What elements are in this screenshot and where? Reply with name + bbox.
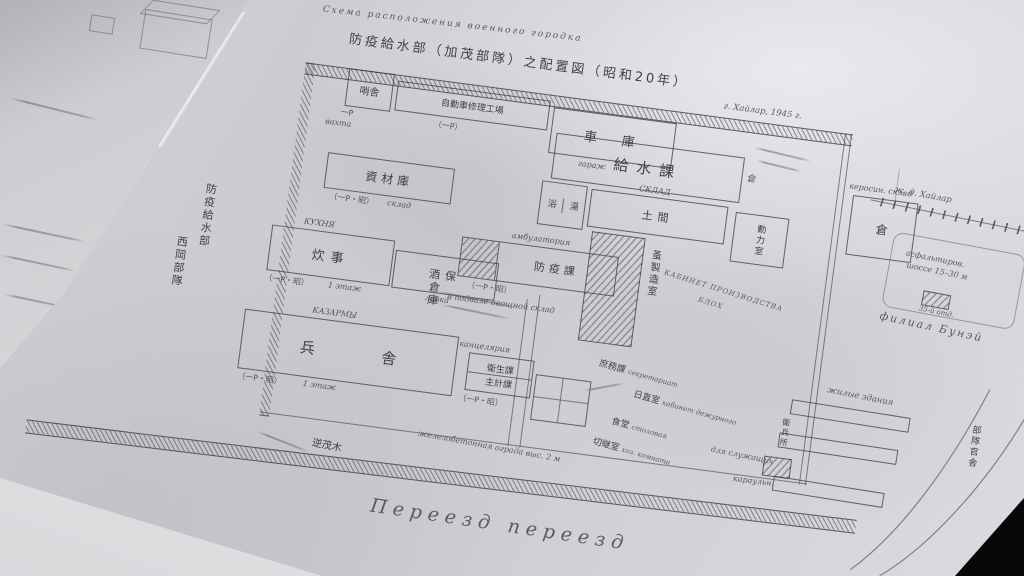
flea-production-note-2: БЛОХ (697, 296, 724, 311)
illegible-cursive-note (757, 160, 802, 172)
hq-duty-ru: кабинет дежурного (661, 399, 737, 427)
illegible-cursive-note (754, 147, 811, 162)
kitchen-note-below: 1 этаж (327, 280, 361, 293)
guard-post-sub: 一Р (340, 106, 354, 119)
water-side-note: 倉 (747, 171, 758, 185)
doma-label: 土間 (641, 207, 675, 227)
building-hq (530, 374, 592, 427)
illegible-pencil-note (3, 223, 85, 242)
bottom-cursive-note: Переезд переезд (369, 494, 631, 554)
flea-production-note-1: КАБИНЕТ ПРОИЗВОДСТВА (663, 268, 784, 313)
hq-duty-jp: 日直室 (632, 390, 661, 407)
materials-note: склад (387, 198, 412, 210)
building-flea-production (578, 231, 646, 347)
power-room-label: 動力室 (751, 223, 768, 257)
water-section-label: 給水課 (612, 153, 683, 183)
compound-wall-right-inner (805, 134, 852, 485)
materials-label: 資材庫 (364, 167, 414, 190)
kitchen-sub: （一Р・昭） (264, 272, 310, 289)
housing-bar-2 (777, 432, 898, 465)
hq-secretariat-jp: 庶務課 (598, 359, 627, 376)
hq-aux-jp: 切継室 (592, 437, 621, 454)
building-bath: 浴 湯 (537, 180, 588, 230)
illegible-pencil-note (1, 254, 76, 271)
building-power-room: 動力室 (729, 212, 789, 269)
repair-shop-sub: （一Р） (433, 119, 463, 134)
housing-bar-3 (772, 476, 885, 508)
materials-sub: （一Р・昭） (329, 191, 375, 208)
site-plan-drawing: Схема расположения военного городка 防疫給水… (96, 0, 1024, 576)
kitchen-note-above: КУХНЯ (303, 217, 335, 230)
photo-of-hand-drawn-site-plan: { "title": { "ru": "Схема расположения в… (0, 0, 1024, 576)
compound-wall-right (799, 133, 847, 484)
barracks-sub: （一Р・昭） (237, 370, 283, 387)
epidemic-note-above: амбулатория (511, 231, 570, 248)
housing-kanji-label: 部隊官舎 (958, 424, 983, 521)
building-materials-store: 資材庫 （一Р・昭） склад (324, 152, 456, 204)
admin-sub: （一Р・昭） (458, 392, 504, 409)
bath-label-2: 湯 (562, 198, 585, 216)
housing-side-note: для служащих (710, 444, 774, 466)
barracks-label: 兵 舎 (273, 332, 423, 372)
building-admin: 衛生課 主計課 канцелярия （一Р・昭） (464, 352, 534, 398)
hq-dining-jp: 食堂 (610, 417, 630, 431)
repair-shop-label: 自動車修理工場 (440, 95, 504, 116)
bath-label-1: 浴 (540, 195, 564, 213)
admin-note-above: канцелярия (459, 339, 511, 355)
hq-dining-label: 食堂 столовая (610, 414, 669, 442)
guard-post-label: 哨舎 (359, 81, 381, 98)
barracks-note-below: 1 этаж (302, 379, 336, 392)
building-guard-post: 哨舎 一Р вахта (344, 68, 395, 112)
building-kitchen: 炊事 КУХНЯ （一Р・昭） 1 этаж (266, 224, 395, 286)
fence-kanji-label: 逆茂木 (311, 434, 343, 455)
margin-vertical-note-2: 西岡部隊 (162, 235, 190, 326)
hq-duty-label: 日直室 кабинет дежурного (632, 387, 738, 428)
epidemic-hatched-cell (458, 237, 500, 280)
kitchen-label: 炊事 (311, 243, 351, 267)
kerosene-label: 倉 (875, 220, 889, 238)
pencil-small-box-sketch (89, 14, 115, 35)
margin-vertical-note-1: 防疫給水部 (189, 182, 219, 293)
barracks-note-above: КАЗАРМЫ (312, 305, 358, 320)
hq-dining-ru: столовая (631, 423, 668, 440)
fence-note-russian: железобетонная ограда выс. 2 м (418, 429, 561, 464)
housing-note: жилые здания (827, 385, 895, 408)
illegible-pencil-note (9, 97, 99, 121)
